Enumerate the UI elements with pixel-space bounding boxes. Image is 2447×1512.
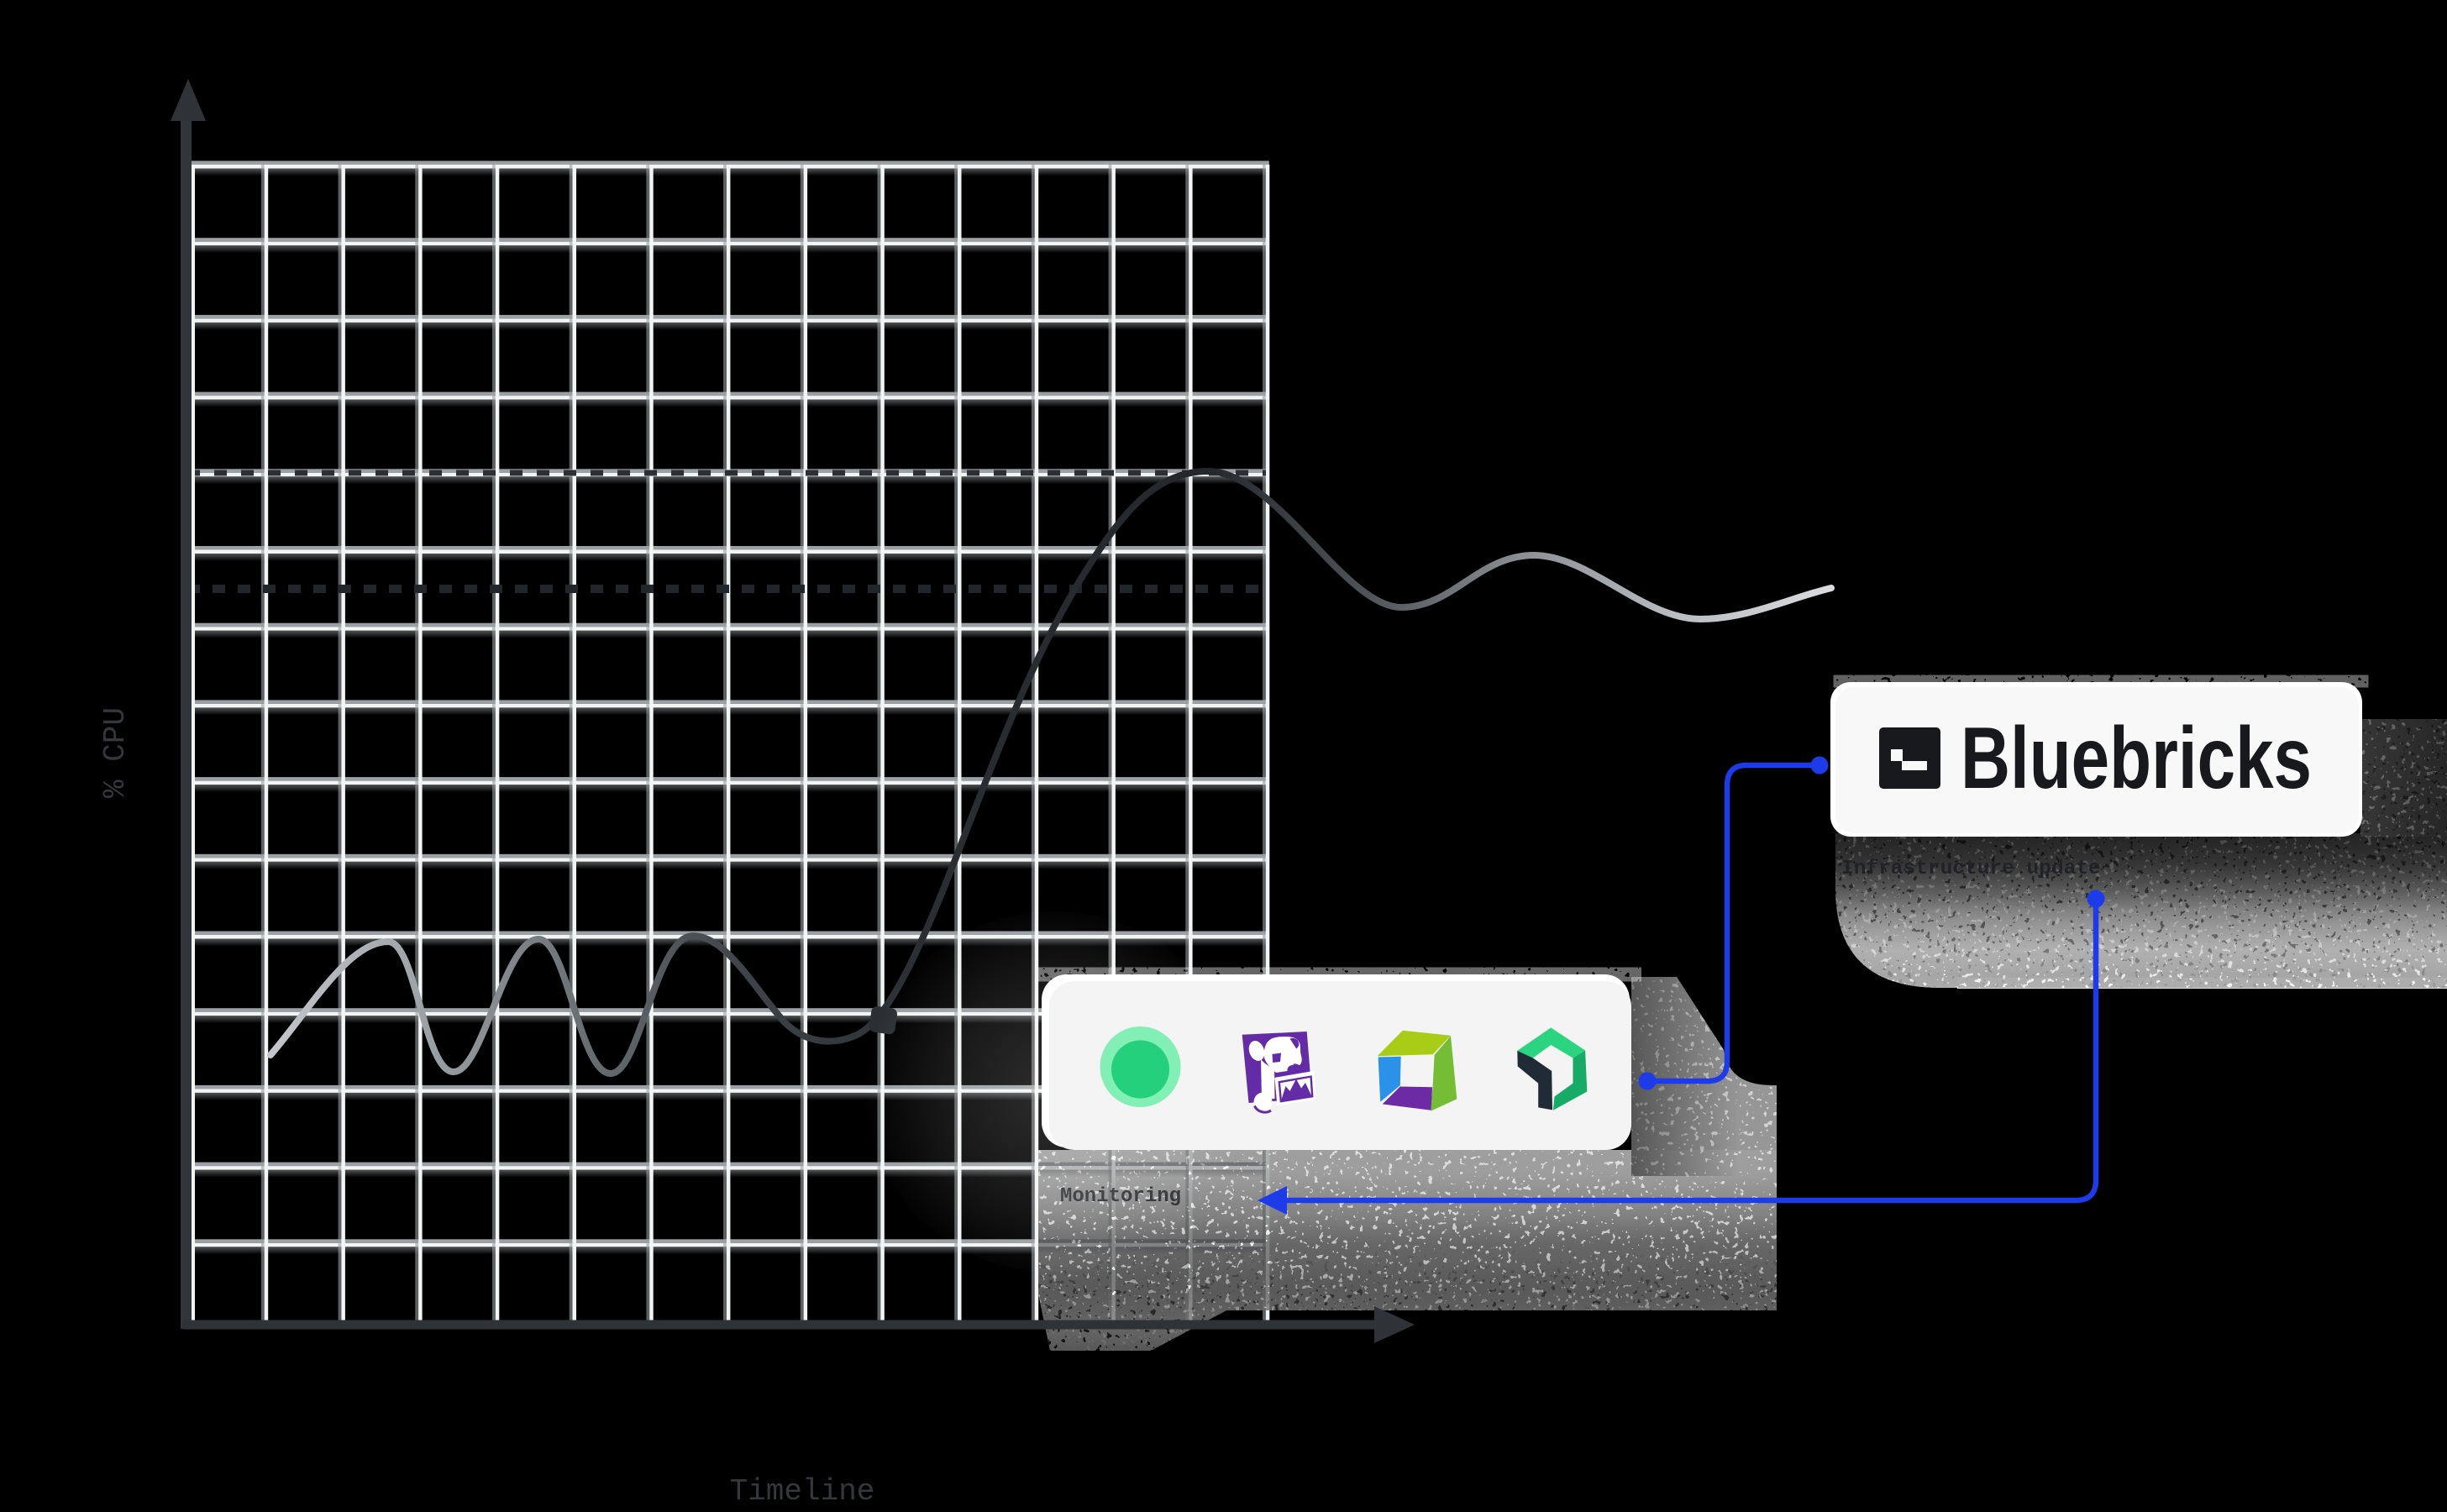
svg-text:Bluebricks: Bluebricks: [1961, 710, 2312, 807]
svg-text:% CPU: % CPU: [98, 707, 133, 798]
svg-text:Timeline: Timeline: [730, 1474, 875, 1509]
svg-text:Infrastructure update: Infrastructure update: [1841, 858, 2101, 880]
